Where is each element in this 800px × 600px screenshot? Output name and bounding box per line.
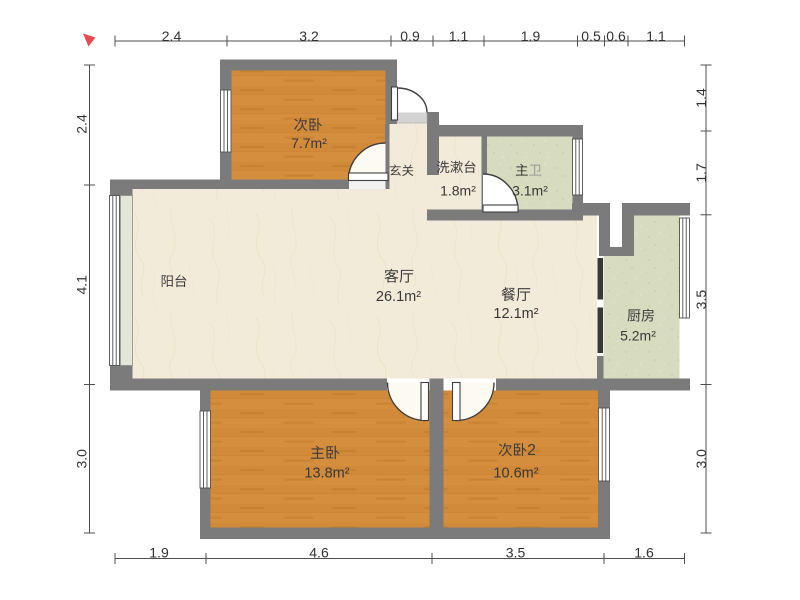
svg-text:1.8m²: 1.8m² — [440, 183, 476, 199]
svg-text:2.4: 2.4 — [74, 114, 90, 134]
svg-text:26.1m²: 26.1m² — [376, 289, 421, 305]
svg-text:1.7: 1.7 — [693, 163, 709, 183]
svg-text:3.5: 3.5 — [693, 290, 709, 310]
svg-text:3.1m²: 3.1m² — [512, 183, 548, 199]
svg-text:2: 2 — [527, 442, 536, 459]
svg-text:10.6m²: 10.6m² — [493, 466, 538, 482]
svg-text:1.9: 1.9 — [149, 545, 169, 561]
svg-text:13.8m²: 13.8m² — [304, 466, 349, 482]
svg-text:1.9: 1.9 — [521, 28, 541, 44]
svg-text:5.2m²: 5.2m² — [620, 328, 656, 344]
svg-text:3.2: 3.2 — [299, 28, 319, 44]
svg-text:4.6: 4.6 — [309, 545, 329, 561]
svg-text:1.1: 1.1 — [646, 28, 666, 44]
svg-text:7.7m²: 7.7m² — [291, 135, 327, 151]
svg-text:4.1: 4.1 — [74, 275, 90, 295]
svg-text:3.0: 3.0 — [693, 449, 709, 469]
svg-text:3.0: 3.0 — [74, 449, 90, 469]
svg-text:1.1: 1.1 — [449, 28, 469, 44]
svg-text:0.9: 0.9 — [400, 28, 420, 44]
svg-text:12.1m²: 12.1m² — [493, 306, 538, 322]
svg-text:1.4: 1.4 — [693, 88, 709, 108]
svg-text:3.5: 3.5 — [506, 545, 526, 561]
svg-text:0.5: 0.5 — [581, 28, 601, 44]
svg-text:0.6: 0.6 — [606, 28, 626, 44]
svg-text:1.6: 1.6 — [634, 545, 654, 561]
svg-text:2.4: 2.4 — [162, 28, 182, 44]
